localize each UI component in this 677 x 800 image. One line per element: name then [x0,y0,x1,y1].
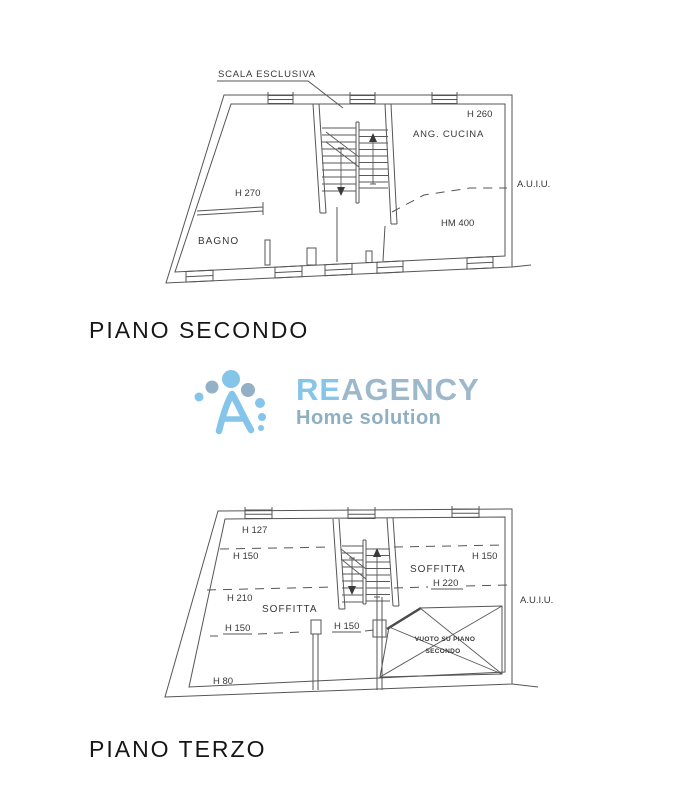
plan-secondo-title: PIANO SECONDO [89,317,309,344]
top-windows [245,506,479,519]
stair-arrow-down-head [348,586,356,595]
label-h220: H 220 [433,578,458,589]
logo-dot [258,425,264,431]
wall-stub [307,248,316,265]
stair-break-line [341,549,366,579]
logo: REAGENCY Home solution [190,360,490,455]
stair-arrow-down-head [337,187,345,196]
staircase [341,540,390,604]
logo-dot [206,381,219,394]
window-symbol [268,92,293,104]
outer-wall-extension [512,684,538,687]
vuoto-area: VUOTO SU PIANO SECONDO [380,606,502,677]
stair-divider [363,540,366,604]
logo-wordmark-re: RE [296,372,341,407]
wall-stub [265,240,270,265]
outer-wall-extension [512,265,531,267]
logo-dot [222,370,240,388]
window-symbol [186,270,213,282]
label-auiu-secondo: A.U.I.U. [517,179,550,190]
logo-text-block: REAGENCY Home solution [296,374,480,430]
label-auiu-terzo: A.U.I.U. [520,595,553,606]
room-label-bagno: BAGNO [198,236,239,247]
logo-dot [195,393,204,402]
window-symbol [452,506,479,518]
window-symbol [275,266,302,278]
label-h150-mid-left: H 150 [225,623,250,634]
top-windows [268,92,457,104]
label-h260: H 260 [467,109,492,120]
partition-wall-left [313,634,318,690]
window-symbol [432,92,457,104]
floor-plan-page: SCALA ESCLUSIVA H 260 ANG. CUCINA A.U.I.… [0,0,677,800]
label-scala-esclusiva: SCALA ESCLUSIVA [218,69,316,80]
stair-arrow-up [374,551,380,597]
label-h127: H 127 [242,525,267,536]
window-symbol [348,507,375,519]
label-hm400: HM 400 [441,218,474,229]
label-h210: H 210 [227,593,252,604]
stair-divider [356,122,359,203]
bagno-partition-wall [197,202,263,215]
wall-stub [373,620,386,637]
room-label-soffitta-right: SOFFITTA [410,564,466,575]
label-h150-top-left: H 150 [233,551,258,562]
stair-break-line [326,132,359,167]
plan-terzo-title: PIANO TERZO [89,736,267,763]
logo-dot [241,383,255,397]
floor-plan-secondo: SCALA ESCLUSIVA H 260 ANG. CUCINA A.U.I.… [166,69,550,283]
staircase [322,122,388,203]
label-h270: H 270 [235,188,260,199]
logo-dot [258,413,266,421]
logo-dot [255,398,265,408]
label-h80: H 80 [213,676,233,687]
label-h150-top-right: H 150 [472,551,497,562]
window-symbol [350,92,375,104]
wall-stub [366,251,372,263]
logo-wordmark: REAGENCY [296,374,480,406]
window-symbol [377,261,403,273]
room-label-soffitta-left: SOFFITTA [262,604,318,615]
window-symbol [245,507,272,519]
logo-tagline: Home solution [296,407,480,430]
wall-stub [311,620,321,634]
height-dashed-line-150-top-right [394,545,504,547]
vuoto-bevel-edge [387,608,421,629]
window-symbol [467,257,493,270]
label-vuoto-line1: VUOTO SU PIANO [415,636,475,643]
height-dashed-line-210 [207,587,332,590]
label-vuoto-line2: SECONDO [426,648,461,655]
height-dashed-line-150-top-left [220,547,332,549]
kitchen-height-dashed-line [392,188,507,212]
stair-arrow-up-head [369,133,377,142]
floor-plan-terzo: VUOTO SU PIANO SECONDO H 127 H 150 H 150… [165,506,553,697]
logo-wordmark-agency: AGENCY [341,372,480,407]
window-symbol [325,263,352,275]
room-label-ang-cucina: ANG. CUCINA [413,129,484,140]
person-a-dots-icon [190,360,290,455]
stair-treads-left [322,128,356,191]
logo-a-shape [219,394,251,431]
label-h150-mid-center: H 150 [334,621,359,632]
